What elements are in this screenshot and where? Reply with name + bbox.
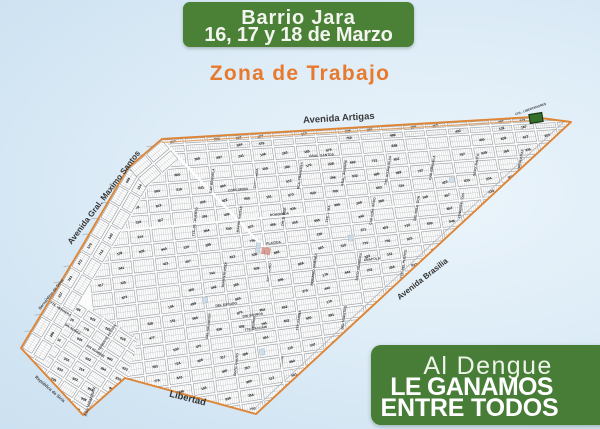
svg-text:128: 128 — [316, 232, 322, 237]
svg-text:652: 652 — [282, 305, 288, 310]
svg-text:488: 488 — [390, 133, 396, 138]
svg-text:703: 703 — [356, 349, 363, 355]
svg-text:546: 546 — [449, 219, 455, 224]
svg-text:785: 785 — [490, 202, 497, 208]
svg-text:620: 620 — [310, 191, 316, 196]
svg-text:938: 938 — [473, 229, 480, 235]
svg-text:469: 469 — [156, 393, 162, 398]
svg-text:750: 750 — [346, 136, 352, 141]
svg-text:665: 665 — [251, 420, 257, 425]
svg-text:584: 584 — [154, 189, 160, 194]
svg-text:167: 167 — [521, 125, 527, 130]
svg-text:295: 295 — [20, 357, 27, 363]
svg-text:132: 132 — [568, 144, 575, 149]
svg-text:389: 389 — [110, 399, 117, 405]
svg-text:821: 821 — [563, 116, 569, 120]
svg-text:630: 630 — [24, 317, 31, 323]
svg-text:159: 159 — [262, 166, 268, 171]
svg-text:888: 888 — [455, 257, 462, 262]
svg-text:776: 776 — [229, 424, 235, 429]
svg-text:343: 343 — [88, 194, 94, 199]
svg-text:371: 371 — [360, 228, 366, 233]
svg-text:326: 326 — [131, 381, 138, 386]
svg-text:881: 881 — [295, 399, 301, 404]
svg-text:532: 532 — [352, 174, 358, 179]
svg-text:228: 228 — [328, 162, 334, 167]
svg-text:701: 701 — [89, 416, 96, 422]
svg-text:Avenida Artigas: Avenida Artigas — [303, 111, 375, 126]
svg-text:214: 214 — [137, 235, 143, 240]
svg-text:561: 561 — [274, 416, 281, 422]
svg-text:466: 466 — [270, 222, 276, 227]
svg-text:655: 655 — [244, 196, 250, 201]
svg-text:734: 734 — [398, 184, 404, 189]
svg-text:540: 540 — [226, 226, 232, 231]
svg-text:600: 600 — [174, 173, 180, 177]
svg-text:662: 662 — [350, 160, 356, 165]
svg-text:381: 381 — [148, 141, 154, 146]
svg-text:321: 321 — [334, 352, 341, 358]
svg-text:999: 999 — [334, 203, 340, 208]
svg-text:690: 690 — [427, 221, 433, 226]
svg-text:828: 828 — [354, 336, 361, 341]
svg-text:180: 180 — [284, 165, 290, 169]
svg-text:838: 838 — [391, 144, 397, 149]
svg-text:296: 296 — [330, 175, 336, 180]
svg-text:945: 945 — [375, 320, 382, 326]
svg-text:709: 709 — [332, 189, 338, 194]
svg-text:664: 664 — [5, 347, 12, 353]
svg-text:702: 702 — [227, 410, 234, 416]
svg-text:175: 175 — [180, 403, 187, 409]
svg-text:129: 129 — [18, 327, 25, 333]
svg-text:635: 635 — [181, 417, 188, 422]
svg-text:683: 683 — [376, 185, 382, 190]
svg-text:982: 982 — [336, 366, 343, 371]
svg-text:771: 771 — [107, 162, 113, 167]
svg-text:516: 516 — [176, 187, 182, 192]
svg-text:836: 836 — [493, 214, 500, 220]
svg-text:824: 824 — [547, 146, 554, 151]
svg-text:541: 541 — [118, 266, 124, 271]
svg-text:754: 754 — [566, 132, 572, 137]
svg-text:125: 125 — [120, 281, 126, 286]
svg-text:441: 441 — [510, 187, 517, 192]
